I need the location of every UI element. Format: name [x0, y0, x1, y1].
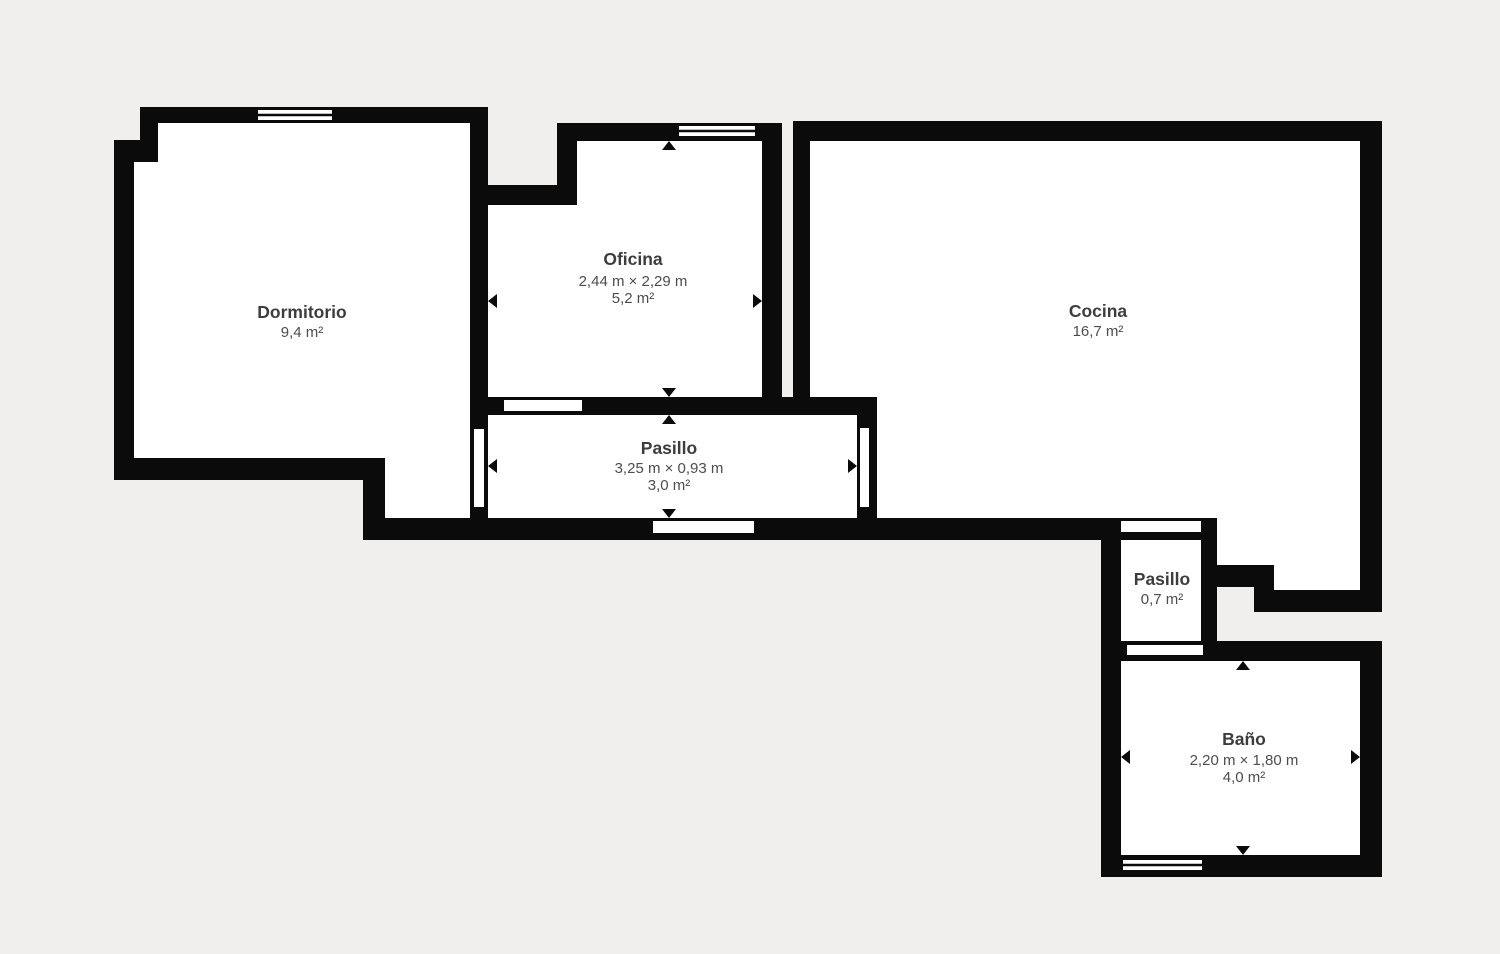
wall-segment	[793, 123, 810, 415]
door-opening	[1126, 644, 1204, 656]
wall-segment	[1254, 590, 1382, 612]
room-name: Cocina	[1069, 301, 1128, 321]
window	[257, 109, 333, 121]
room-area: 3,0 m²	[648, 477, 691, 494]
room-name: Dormitorio	[257, 302, 346, 322]
wall-segment	[793, 121, 1382, 141]
room-dimensions: 3,25 m × 0,93 m	[615, 460, 724, 477]
room-name: Oficina	[603, 249, 663, 269]
room-dimensions: 2,20 m × 1,80 m	[1190, 752, 1299, 769]
wall-segment	[114, 140, 134, 480]
floor-plan-svg: Dormitorio9,4 m²Oficina2,44 m × 2,29 m5,…	[0, 0, 1500, 954]
room-area: 16,7 m²	[1073, 323, 1124, 340]
door-opening	[503, 399, 583, 412]
wall-segment	[1360, 121, 1382, 612]
door-opening	[859, 427, 870, 508]
wall-segment	[1101, 518, 1121, 877]
room-area: 5,2 m²	[612, 290, 655, 307]
door-opening	[1120, 520, 1202, 533]
room-name: Baño	[1222, 729, 1266, 749]
room-label-pasillo-2: Pasillo0,7 m²	[1134, 569, 1190, 608]
window	[1122, 859, 1203, 871]
room-area: 9,4 m²	[281, 324, 324, 341]
room-dimensions: 2,44 m × 2,29 m	[579, 273, 688, 290]
floor-plan-page: Dormitorio9,4 m²Oficina2,44 m × 2,29 m5,…	[0, 0, 1500, 954]
wall-segment	[762, 123, 782, 415]
window	[678, 125, 756, 137]
wall-segment	[1360, 641, 1382, 877]
wall-segment	[114, 458, 385, 480]
door-opening	[652, 520, 755, 534]
room-area: 0,7 m²	[1141, 591, 1184, 608]
room-name: Pasillo	[641, 438, 697, 458]
room-label-cocina: Cocina16,7 m²	[1069, 301, 1128, 340]
wall-segment	[1201, 518, 1217, 661]
room-area: 4,0 m²	[1223, 769, 1266, 786]
room-name: Pasillo	[1134, 569, 1190, 589]
wall-segment	[363, 518, 1217, 540]
door-opening	[473, 428, 485, 508]
